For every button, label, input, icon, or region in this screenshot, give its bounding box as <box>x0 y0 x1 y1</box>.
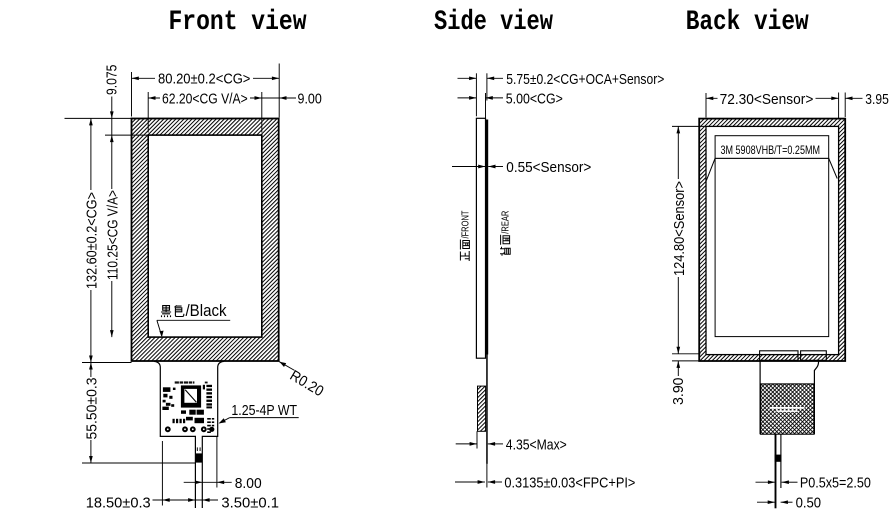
svg-text:0.3135±0.03<FPC+PI>: 0.3135±0.03<FPC+PI> <box>504 475 635 492</box>
svg-text:132.60±0.2<CG>: 132.60±0.2<CG> <box>83 192 100 289</box>
svg-text:0.50: 0.50 <box>796 495 822 512</box>
svg-text:/REAR: /REAR <box>500 210 512 233</box>
svg-text:Front view: Front view <box>169 7 307 38</box>
svg-text:3.50±0.1: 3.50±0.1 <box>221 494 279 511</box>
svg-text:62.20<CG V/A>: 62.20<CG V/A> <box>162 91 248 108</box>
svg-text:0.55<Sensor>: 0.55<Sensor> <box>506 159 591 176</box>
svg-text:3M 5908VHB/T=0.25MM: 3M 5908VHB/T=0.25MM <box>721 143 821 157</box>
svg-text:Side view: Side view <box>434 7 553 38</box>
svg-text:55.50±0.3: 55.50±0.3 <box>83 378 100 440</box>
svg-text:P0.5x5=2.50: P0.5x5=2.50 <box>800 475 871 492</box>
svg-text:5.00<CG>: 5.00<CG> <box>506 90 563 107</box>
svg-text:72.30<Sensor>: 72.30<Sensor> <box>720 91 814 108</box>
svg-text:4.35<Max>: 4.35<Max> <box>506 436 567 453</box>
svg-text:124.80<Sensor>: 124.80<Sensor> <box>671 181 688 276</box>
svg-text:110.25<CG V/A>: 110.25<CG V/A> <box>104 190 121 280</box>
svg-text:8.00: 8.00 <box>235 475 262 492</box>
svg-text:80.20±0.2<CG>: 80.20±0.2<CG> <box>158 70 251 87</box>
svg-text:9.075: 9.075 <box>104 65 121 95</box>
svg-text:3.90: 3.90 <box>670 377 687 405</box>
svg-text:/FRONT: /FRONT <box>460 210 472 238</box>
svg-text:3.95: 3.95 <box>865 91 889 108</box>
svg-text:18.50±0.3: 18.50±0.3 <box>86 494 151 511</box>
svg-text:1.25-4P WT: 1.25-4P WT <box>231 402 297 419</box>
svg-text:5.75±0.2<CG+OCA+Sensor>: 5.75±0.2<CG+OCA+Sensor> <box>506 71 664 88</box>
svg-text:/Black: /Black <box>186 302 228 320</box>
svg-text:Back view: Back view <box>686 7 809 38</box>
svg-text:9.00: 9.00 <box>298 91 322 108</box>
